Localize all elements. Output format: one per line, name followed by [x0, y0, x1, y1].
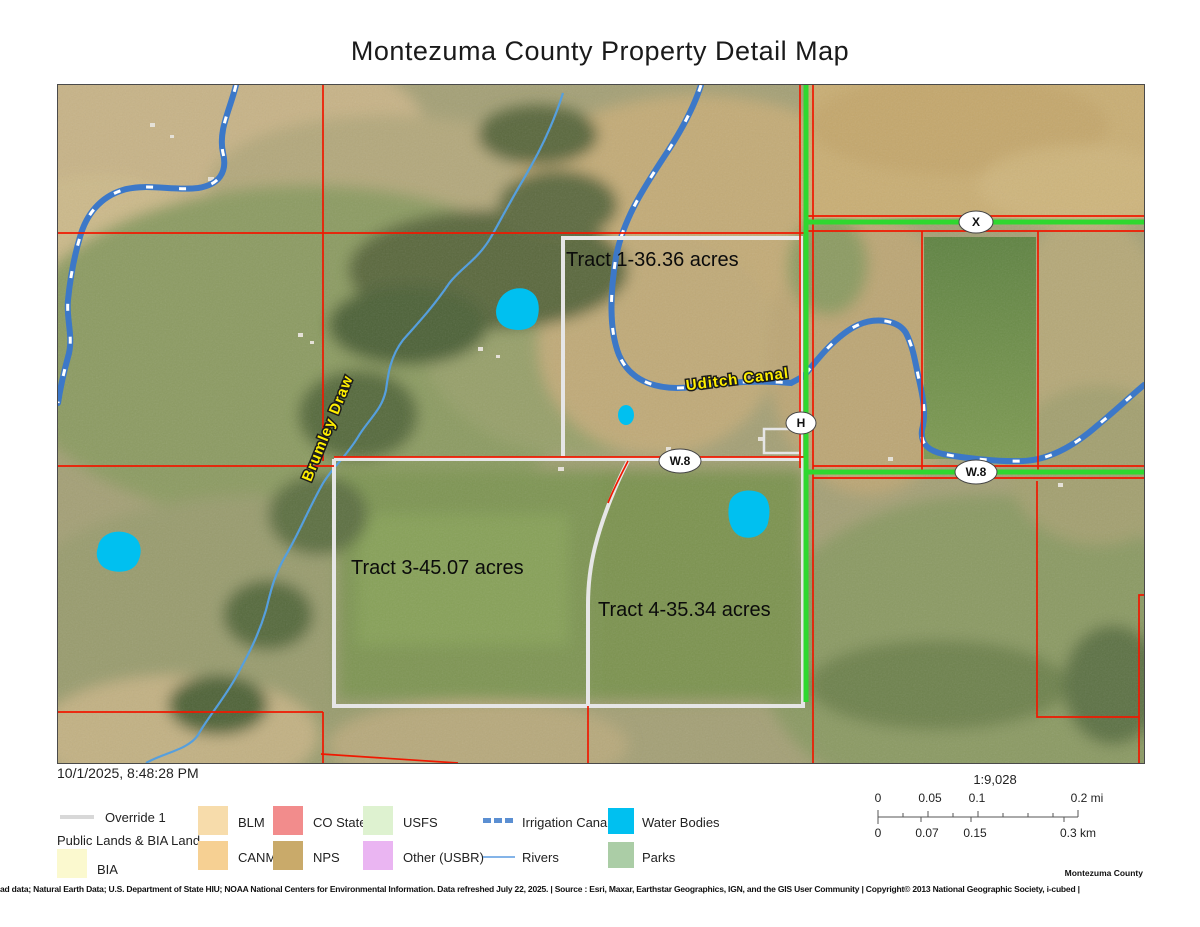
- road-shield-x: X: [959, 211, 993, 233]
- svg-text:H: H: [797, 416, 806, 430]
- scale-km-tick: 0.15: [963, 826, 986, 840]
- legend-swatch-canm: [198, 841, 228, 870]
- legend-label-canm: CANM: [238, 850, 276, 865]
- legend-swatch-irrigation-canals: [483, 818, 515, 823]
- legend-label-override: Override 1: [105, 810, 166, 825]
- terrain: [58, 85, 1144, 763]
- scale-km-tick: 0.3 km: [1060, 826, 1096, 840]
- legend-swatch-override: [60, 815, 94, 819]
- scale-mi-tick: 0.2 mi: [1071, 791, 1104, 805]
- tract4-label: Tract 4-35.34 acres: [598, 599, 771, 621]
- svg-text:X: X: [972, 215, 980, 229]
- pond: [728, 491, 769, 538]
- svg-text:W.8: W.8: [966, 465, 987, 479]
- scale-km-tick: 0.07: [915, 826, 938, 840]
- legend-label-parks: Parks: [642, 850, 675, 865]
- pond: [618, 405, 634, 425]
- legend-swatch-water-bodies: [608, 808, 634, 834]
- legend-swatch-blm: [198, 806, 228, 835]
- svg-text:W.8: W.8: [670, 454, 691, 468]
- legend-label-co-state: CO State: [313, 815, 366, 830]
- legend-label-usfs: USFS: [403, 815, 438, 830]
- road-shield-w8-right: W.8: [955, 460, 997, 484]
- legend-swatch-usfs: [363, 806, 393, 835]
- legend-swatch-rivers: [483, 856, 515, 858]
- legend-label-other-usbr: Other (USBR): [403, 850, 484, 865]
- legend-swatch-other-usbr: [363, 841, 393, 870]
- legend-label-bia: BIA: [97, 862, 118, 877]
- scale-mi-tick: 0.05: [918, 791, 941, 805]
- scale-ticks: [872, 808, 1092, 826]
- legend-label-water-bodies: Water Bodies: [642, 815, 720, 830]
- legend-header-public-lands: Public Lands & BIA Land: [57, 833, 200, 848]
- legend-label-irrigation-canals: Irrigation Canals: [522, 815, 617, 830]
- scale-km-tick: 0: [875, 826, 882, 840]
- road-shield-h: H: [786, 412, 816, 434]
- legend-swatch-nps: [273, 841, 303, 870]
- scale-ratio: 1:9,028: [920, 772, 1070, 787]
- legend-label-nps: NPS: [313, 850, 340, 865]
- legend-swatch-parks: [608, 842, 634, 868]
- legend-label-blm: BLM: [238, 815, 265, 830]
- pond: [97, 532, 141, 572]
- legend-swatch-bia: [57, 849, 87, 878]
- legend-swatch-co-state: [273, 806, 303, 835]
- map-timestamp: 10/1/2025, 8:48:28 PM: [57, 765, 199, 781]
- attribution-credits: ad data; Natural Earth Data; U.S. Depart…: [0, 884, 1200, 894]
- legend-label-rivers: Rivers: [522, 850, 559, 865]
- map-canvas[interactable]: X H W.8 W.8 Uditch Canal Brumley Draw Tr…: [57, 84, 1145, 764]
- tract1-label: Tract 1-36.36 acres: [566, 249, 739, 271]
- attribution-county: Montezuma County: [1065, 868, 1143, 878]
- page-title: Montezuma County Property Detail Map: [0, 36, 1200, 67]
- scale-mi-tick: 0.1: [969, 791, 986, 805]
- scale-mi-tick: 0: [875, 791, 882, 805]
- road-shield-w8-left: W.8: [659, 449, 701, 473]
- property-map-svg: X H W.8 W.8 Uditch Canal Brumley Draw Tr…: [58, 85, 1144, 763]
- tract3-label: Tract 3-45.07 acres: [351, 557, 524, 579]
